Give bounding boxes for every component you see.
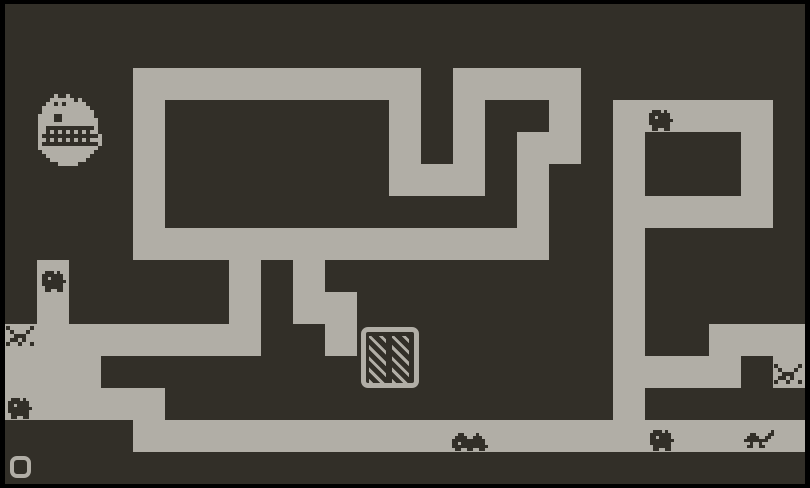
wide-snail-creature-sprite bbox=[452, 433, 488, 451]
path-tile bbox=[773, 420, 805, 452]
path-tile bbox=[133, 324, 165, 356]
path-tile bbox=[421, 420, 453, 452]
path-tile bbox=[325, 420, 357, 452]
path-tile bbox=[741, 196, 773, 228]
path-tile bbox=[677, 100, 709, 132]
door-hatch-right bbox=[392, 336, 409, 383]
path-tile bbox=[485, 68, 517, 100]
path-tile bbox=[133, 132, 165, 164]
path-tile bbox=[709, 196, 741, 228]
path-tile bbox=[293, 420, 325, 452]
path-tile bbox=[613, 196, 645, 228]
snail-creature-sprite bbox=[298, 175, 322, 196]
bones-creature-sprite bbox=[744, 430, 774, 448]
path-tile bbox=[165, 420, 197, 452]
path-tile bbox=[197, 420, 229, 452]
path-tile bbox=[677, 356, 709, 388]
path-tile bbox=[389, 228, 421, 260]
path-tile bbox=[133, 420, 165, 452]
path-tile bbox=[133, 100, 165, 132]
path-tile bbox=[197, 228, 229, 260]
path-tile bbox=[389, 100, 421, 132]
path-tile bbox=[261, 68, 293, 100]
path-tile bbox=[485, 228, 517, 260]
snail-creature-sprite bbox=[8, 398, 32, 419]
path-tile bbox=[421, 164, 453, 196]
path-tile bbox=[549, 100, 581, 132]
path-tile bbox=[613, 260, 645, 292]
path-tile bbox=[741, 324, 773, 356]
path-tile bbox=[357, 228, 389, 260]
path-tile bbox=[37, 356, 69, 388]
path-tile bbox=[645, 356, 677, 388]
path-tile bbox=[517, 228, 549, 260]
spike-trap-sprite bbox=[774, 364, 802, 384]
path-tile bbox=[613, 164, 645, 196]
path-tile bbox=[613, 420, 645, 452]
path-tile bbox=[613, 388, 645, 420]
path-tile bbox=[133, 164, 165, 196]
path-tile bbox=[677, 420, 709, 452]
path-tile bbox=[549, 132, 581, 164]
path-tile bbox=[709, 324, 741, 356]
path-tile bbox=[517, 164, 549, 196]
path-tile bbox=[421, 228, 453, 260]
path-tile bbox=[517, 132, 549, 164]
path-tile bbox=[645, 196, 677, 228]
path-tile bbox=[133, 388, 165, 420]
path-tile bbox=[677, 196, 709, 228]
path-tile bbox=[261, 420, 293, 452]
path-tile bbox=[613, 100, 645, 132]
path-tile bbox=[165, 324, 197, 356]
path-tile bbox=[325, 68, 357, 100]
path-tile bbox=[485, 420, 517, 452]
path-tile bbox=[165, 228, 197, 260]
path-tile bbox=[69, 324, 101, 356]
maze-playfield bbox=[5, 4, 805, 484]
spike-trap-sprite bbox=[6, 326, 34, 346]
path-tile bbox=[229, 260, 261, 292]
snail-creature-sprite bbox=[42, 271, 66, 292]
path-tile bbox=[613, 324, 645, 356]
game-stage[interactable] bbox=[0, 0, 810, 488]
path-tile bbox=[453, 68, 485, 100]
path-tile bbox=[389, 164, 421, 196]
path-tile bbox=[389, 68, 421, 100]
path-tile bbox=[197, 324, 229, 356]
path-tile bbox=[5, 356, 37, 388]
path-tile bbox=[133, 196, 165, 228]
path-tile bbox=[389, 132, 421, 164]
path-tile bbox=[517, 420, 549, 452]
path-tile bbox=[229, 68, 261, 100]
path-tile bbox=[517, 196, 549, 228]
path-tile bbox=[293, 228, 325, 260]
path-tile bbox=[229, 292, 261, 324]
path-tile bbox=[293, 260, 325, 292]
path-tile bbox=[165, 68, 197, 100]
path-tile bbox=[389, 420, 421, 452]
player-ring-sprite bbox=[10, 456, 31, 478]
path-tile bbox=[357, 68, 389, 100]
path-tile bbox=[229, 324, 261, 356]
path-tile bbox=[741, 164, 773, 196]
path-tile bbox=[741, 132, 773, 164]
path-tile bbox=[325, 324, 357, 356]
boss-monster-sprite bbox=[38, 94, 106, 166]
path-tile bbox=[613, 292, 645, 324]
door-hatch-left bbox=[369, 336, 386, 383]
path-tile bbox=[453, 132, 485, 164]
path-tile bbox=[709, 420, 741, 452]
path-tile bbox=[709, 356, 741, 388]
path-tile bbox=[37, 292, 69, 324]
path-tile bbox=[613, 132, 645, 164]
path-tile bbox=[773, 324, 805, 356]
path-tile bbox=[37, 388, 69, 420]
path-tile bbox=[229, 420, 261, 452]
path-tile bbox=[133, 68, 165, 100]
path-tile bbox=[133, 228, 165, 260]
snail-creature-sprite bbox=[650, 430, 674, 451]
path-tile bbox=[357, 420, 389, 452]
snail-creature-sprite bbox=[649, 110, 673, 131]
path-tile bbox=[613, 228, 645, 260]
path-tile bbox=[229, 228, 261, 260]
path-tile bbox=[453, 100, 485, 132]
path-tile bbox=[517, 68, 549, 100]
path-tile bbox=[197, 68, 229, 100]
path-tile bbox=[293, 68, 325, 100]
path-tile bbox=[37, 324, 69, 356]
path-tile bbox=[613, 356, 645, 388]
path-tile bbox=[325, 292, 357, 324]
path-tile bbox=[69, 388, 101, 420]
path-tile bbox=[69, 356, 101, 388]
hatched-grate-door-sprite bbox=[361, 327, 419, 388]
path-tile bbox=[101, 324, 133, 356]
path-tile bbox=[325, 228, 357, 260]
path-tile bbox=[101, 388, 133, 420]
path-tile bbox=[453, 228, 485, 260]
path-tile bbox=[581, 420, 613, 452]
path-tile bbox=[261, 228, 293, 260]
path-tile bbox=[453, 164, 485, 196]
path-tile bbox=[549, 68, 581, 100]
path-tile bbox=[293, 292, 325, 324]
path-tile bbox=[549, 420, 581, 452]
path-tile bbox=[709, 100, 741, 132]
path-tile bbox=[741, 100, 773, 132]
